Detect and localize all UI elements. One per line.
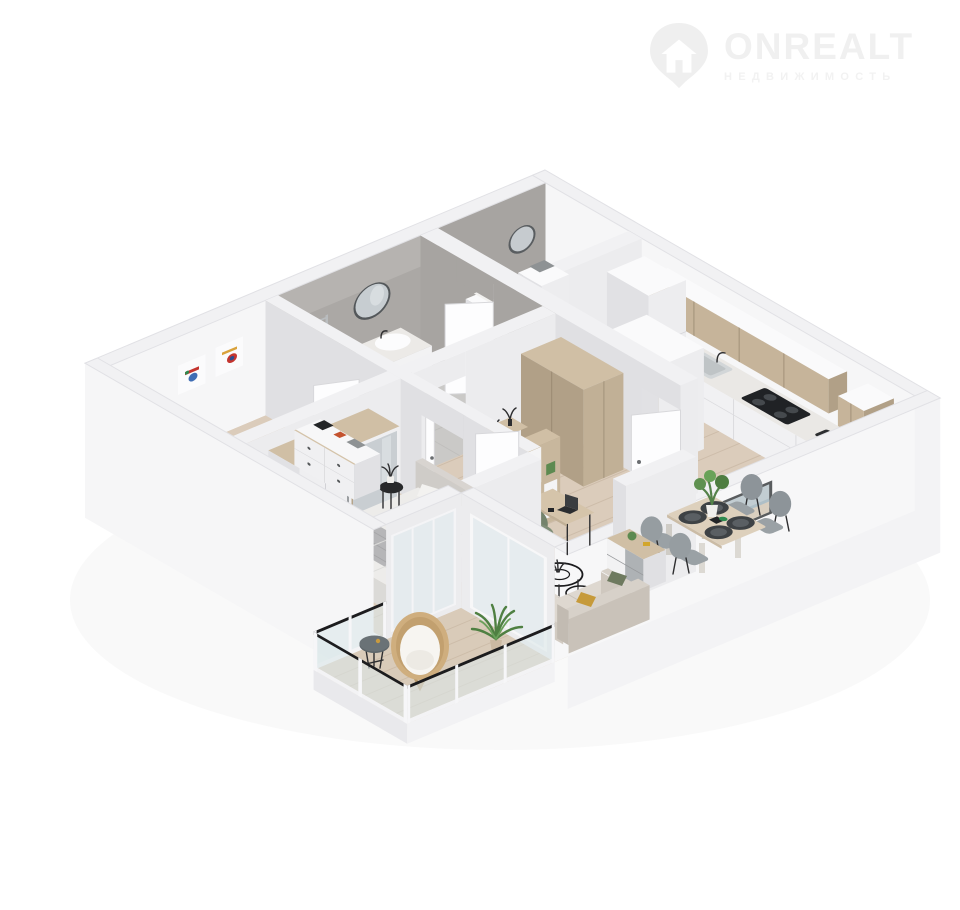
watermark-logo: ONREALT НЕДВИЖИМОСТЬ	[648, 20, 914, 90]
subtitle-text: НЕДВИЖИМОСТЬ	[724, 71, 914, 83]
sideboard-plant	[628, 532, 637, 541]
floor-plan-3d-render	[0, 0, 960, 910]
brand-text: ONREALT	[724, 28, 914, 65]
location-pin-house-icon	[648, 20, 710, 90]
phone	[548, 508, 554, 512]
floor-plan-page: ONREALT НЕДВИЖИМОСТЬ	[0, 0, 960, 910]
